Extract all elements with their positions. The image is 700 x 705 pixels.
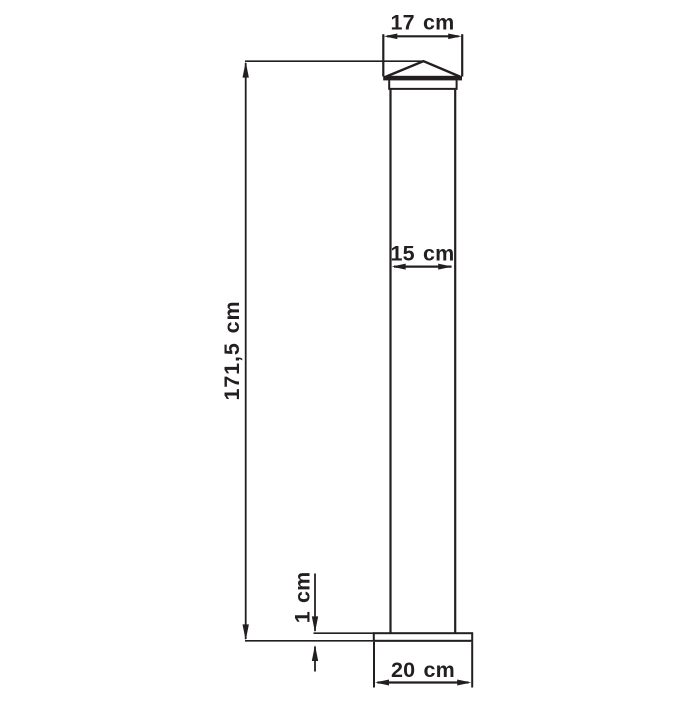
svg-text:171,5 cm: 171,5 cm — [220, 300, 244, 400]
svg-text:20 cm: 20 cm — [391, 658, 455, 682]
svg-text:17 cm: 17 cm — [391, 11, 455, 35]
svg-text:1 cm: 1 cm — [291, 571, 315, 623]
svg-text:15 cm: 15 cm — [391, 241, 455, 265]
